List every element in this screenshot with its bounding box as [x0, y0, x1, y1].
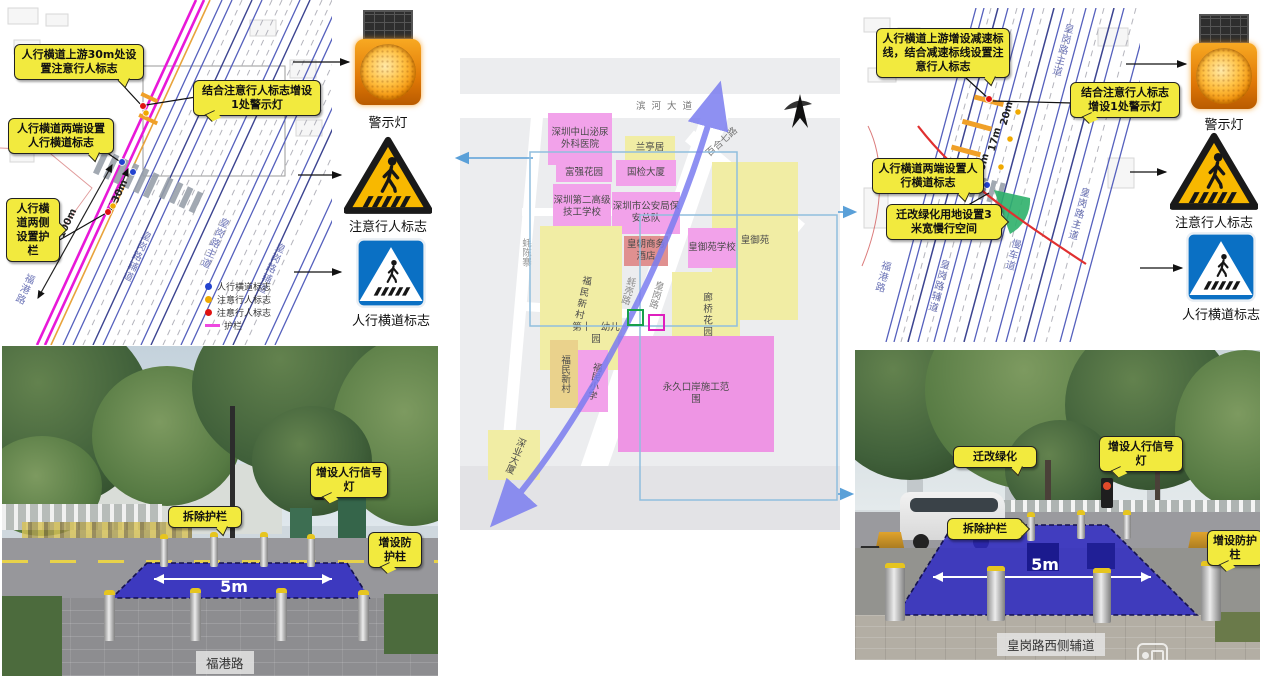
- callout-relocate-green: 迁改绿化: [953, 446, 1037, 468]
- traffic-improvement-figure: 人行横道上游30m处设置注意行人标志 结合注意行人标志增设1处警示灯 人行横道两…: [0, 0, 1269, 681]
- bollard: [260, 532, 268, 567]
- solar-panel: [1199, 14, 1249, 44]
- bollard: [210, 532, 218, 567]
- light-body: [1191, 43, 1257, 109]
- callout-speed-lines: 人行横道上游增设减速标线，结合减速标线设置注意行人标志: [876, 28, 1010, 78]
- crosswalk-sign-left: [356, 238, 426, 312]
- legend-label: 护栏: [224, 319, 242, 332]
- light-lens: [360, 44, 416, 100]
- callout-remove-rail: 拆除护栏: [947, 518, 1023, 540]
- callout-bollards: 增设防护柱: [368, 532, 422, 568]
- bollard: [1077, 510, 1085, 539]
- measurement-5m: 5m: [1031, 555, 1059, 574]
- north-arrow: [784, 94, 812, 128]
- legend-dot-blue: [205, 283, 212, 290]
- callout-signal: 增设人行信号灯: [1099, 436, 1183, 472]
- site-photo-huanggang: 5m 迁改绿化 增设人行信号灯 拆除护栏 增设防护柱 皇岗路西侧辅道: [855, 350, 1260, 660]
- legend-dot-red: [205, 309, 212, 316]
- legend-line-rail: [205, 324, 220, 327]
- site-marker-magenta: [648, 314, 665, 331]
- corridor-arrow: [502, 98, 716, 514]
- bollard: [104, 590, 115, 641]
- callout-green-space: 迁改绿化用地设置3米宽慢行空间: [886, 204, 1002, 240]
- crosswalk-sign-label: 人行横道标志: [339, 310, 443, 329]
- attention-sign-left: [344, 136, 432, 218]
- attention-sign-label: 注意行人标志: [336, 216, 440, 235]
- warning-light-left: [354, 10, 422, 105]
- speed-markings: [132, 92, 167, 125]
- legend-item: 护栏: [205, 319, 271, 332]
- right-plan-panel: 人行横道上游增设减速标线，结合减速标线设置注意行人标志 结合注意行人标志增设1处…: [858, 8, 1140, 342]
- legend-dot-yellow: [205, 296, 212, 303]
- left-plan-panel: 人行横道上游30m处设置注意行人标志 结合注意行人标志增设1处警示灯 人行横道两…: [0, 0, 332, 345]
- bollard: [160, 534, 168, 567]
- solar-panel: [363, 10, 413, 40]
- bollard: [276, 588, 287, 641]
- plan-legend: 人行横道标志 注意行人标志 注意行人标志 护栏: [205, 280, 271, 332]
- warning-light-right: [1190, 14, 1258, 109]
- bollard: [190, 588, 201, 641]
- legend-label: 注意行人标志: [217, 293, 271, 306]
- warning-light-label: 警示灯: [1190, 114, 1258, 133]
- callout-warning-light: 结合注意行人标志增设1处警示灯: [1070, 82, 1180, 118]
- attention-sign-label: 注意行人标志: [1162, 212, 1266, 231]
- light-body: [355, 39, 421, 105]
- callout-remove-rail: 拆除护栏: [168, 506, 242, 528]
- callout-signal: 增设人行信号灯: [310, 462, 388, 498]
- light-lens: [1196, 48, 1252, 104]
- bollard: [1123, 510, 1131, 539]
- callout-guardrail: 人行横道两侧设置护栏: [6, 198, 60, 262]
- callout-warning-light: 结合注意行人标志增设1处警示灯: [193, 80, 321, 116]
- legend-item: 人行横道标志: [205, 280, 271, 293]
- legend-item: 注意行人标志: [205, 306, 271, 319]
- callout-attention-30m: 人行横道上游30m处设置注意行人标志: [14, 44, 144, 80]
- measurement-5m: 5m: [220, 577, 248, 596]
- bollard-large: [885, 563, 905, 621]
- crossing-overlay: 5m: [855, 350, 1260, 660]
- bollard-large: [1201, 561, 1221, 621]
- bollard-large: [1093, 568, 1111, 623]
- bollard: [307, 534, 315, 567]
- watermark-logo: [1137, 643, 1168, 660]
- callout-crosswalk-signs: 人行横道两端设置人行横道标志: [872, 158, 984, 194]
- crosswalk-hatch-2: [159, 177, 204, 213]
- legend-label: 注意行人标志: [217, 306, 271, 319]
- photo-caption: 皇岗路西侧辅道: [997, 633, 1105, 656]
- bollard-large: [987, 566, 1005, 621]
- callout-crosswalk-signs: 人行横道两端设置人行横道标志: [8, 118, 114, 154]
- area-map: 深圳中山泌尿外科医院 兰亭居 富强花园 国检大厦 深圳第二高级技工学校 深圳市公…: [460, 58, 840, 530]
- warning-light-label: 警示灯: [354, 112, 422, 131]
- photo-caption: 福港路: [196, 651, 254, 674]
- site-marker-green: [627, 309, 644, 326]
- crosswalk-sign-label: 人行横道标志: [1169, 304, 1269, 323]
- crosswalk-sign-right: [1186, 232, 1256, 306]
- bollard: [358, 590, 369, 641]
- site-photo-fugang: 5m 增设人行信号灯 拆除护栏 增设防护柱 福港路: [2, 346, 438, 676]
- map-overlay: [460, 58, 840, 530]
- legend-label: 人行横道标志: [217, 280, 271, 293]
- attention-sign-right: [1170, 132, 1258, 214]
- legend-item: 注意行人标志: [205, 293, 271, 306]
- callout-bollards: 增设防护柱: [1207, 530, 1260, 566]
